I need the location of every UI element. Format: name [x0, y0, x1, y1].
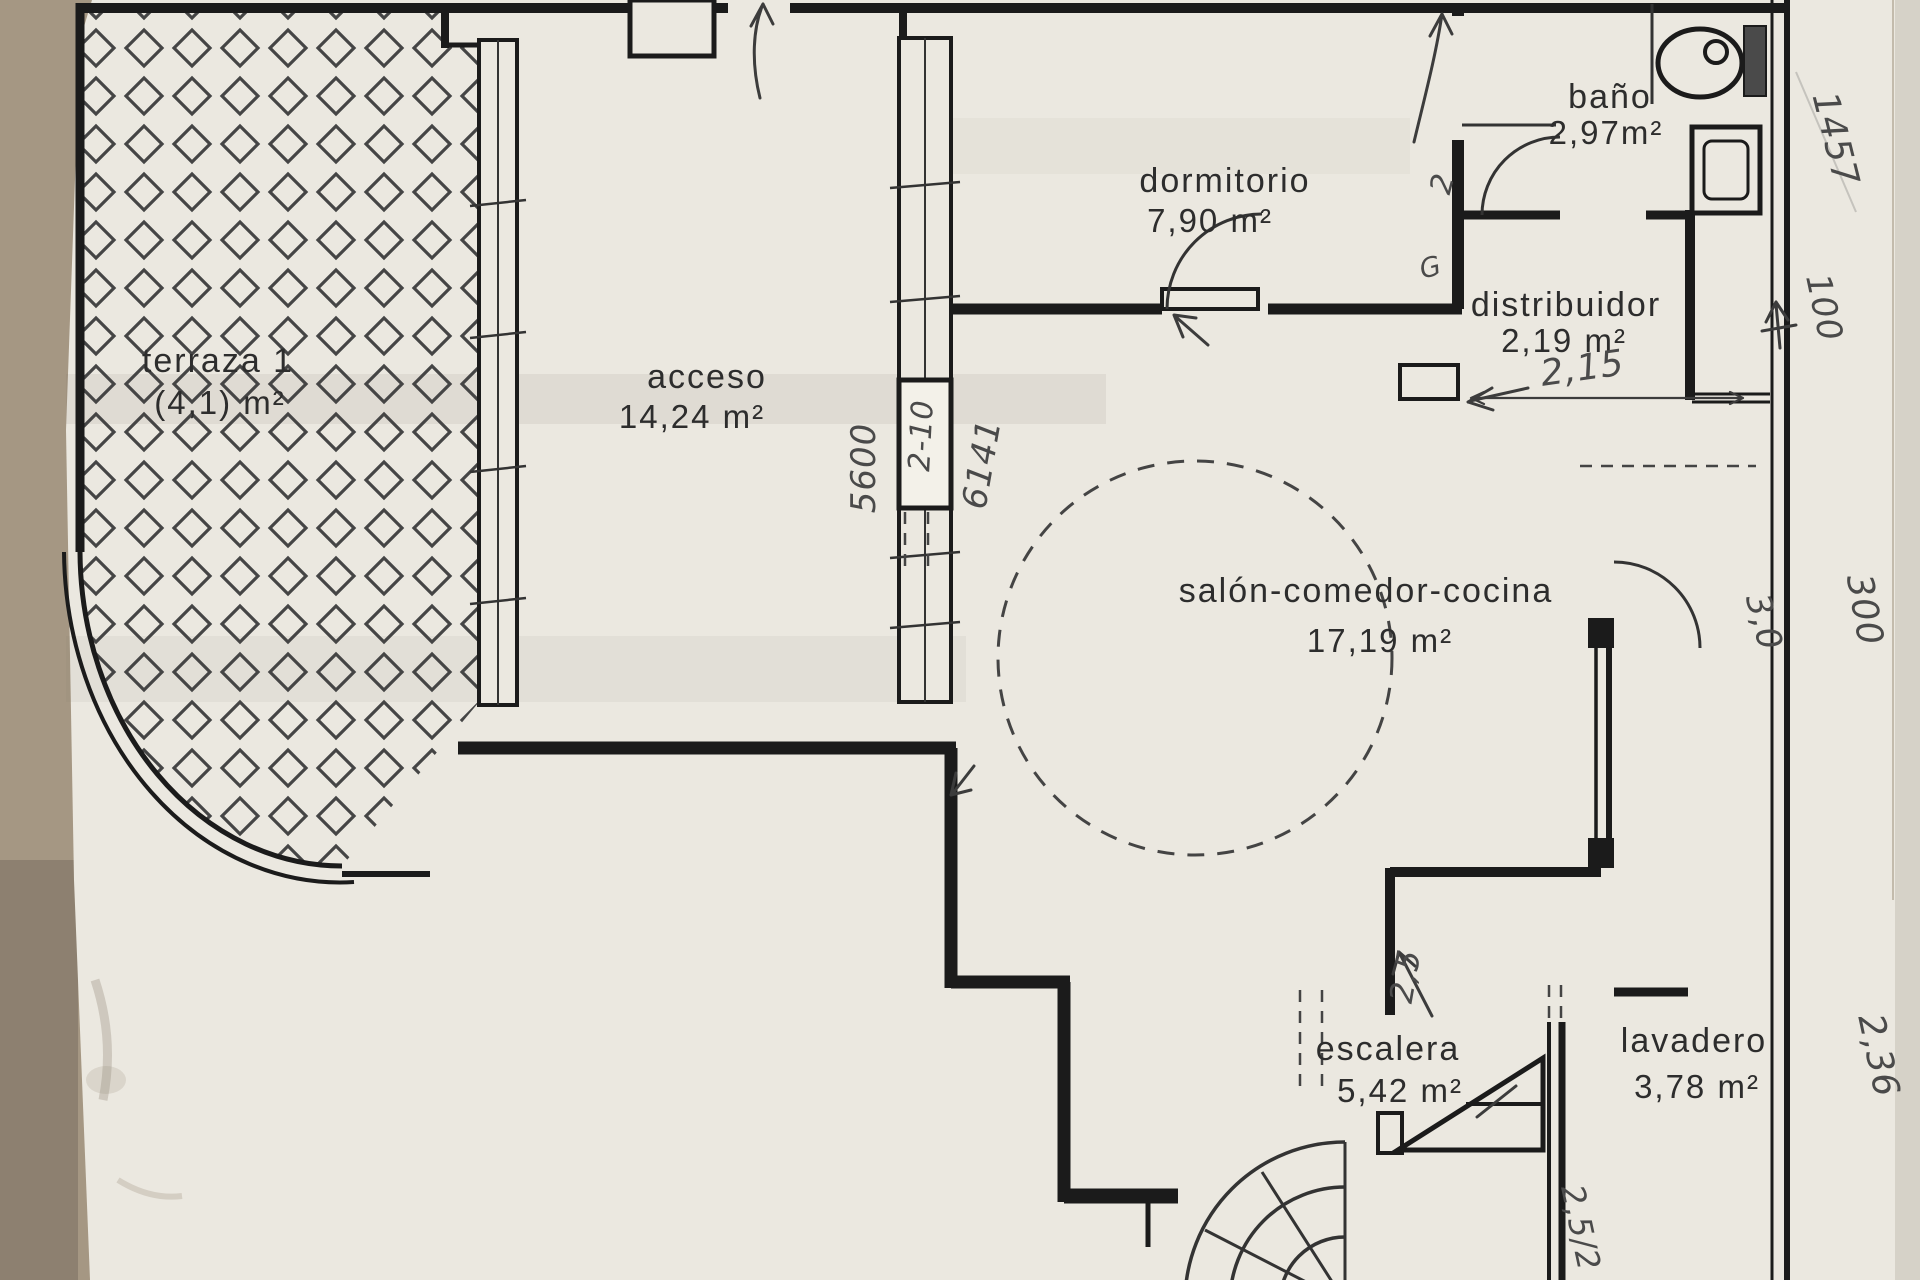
toilet-tank-icon — [1744, 26, 1766, 96]
floor-plan-svg: terraza 1 (4,1) m² acceso 14,24 m² dormi… — [0, 0, 1920, 1280]
dormitorio-door-leaf — [1162, 289, 1258, 309]
room-label-escalera: escalera — [1316, 1030, 1461, 1068]
room-label-terraza: terraza 1 — [142, 342, 294, 380]
room-label-distribuidor: distribuidor — [1471, 286, 1661, 324]
room-label-bano: baño — [1568, 78, 1652, 116]
toilet-icon — [1658, 29, 1742, 97]
room-area-escalera: 5,42 m² — [1337, 1072, 1463, 1109]
room-area-terraza: (4,1) m² — [154, 384, 286, 421]
handwritten-dim-5600: 5600 — [844, 423, 884, 514]
room-area-dormitorio: 7,90 m² — [1147, 202, 1273, 239]
terrace-hatch — [80, 10, 479, 866]
room-label-salon: salón-comedor-cocina — [1179, 572, 1554, 610]
top-niche — [630, 0, 714, 56]
room-area-salon: 17,19 m² — [1307, 622, 1453, 659]
room-label-acceso: acceso — [647, 358, 767, 396]
handwritten-dim-2-10: 2-10 — [902, 399, 941, 473]
room-label-lavadero: lavadero — [1621, 1022, 1767, 1060]
door-jamb-top — [1588, 618, 1614, 648]
door-jamb-bottom — [1588, 838, 1614, 868]
room-label-dormitorio: dormitorio — [1139, 162, 1310, 200]
distribuidor-door-sill — [1400, 365, 1458, 399]
room-area-bano: 2,97m² — [1549, 114, 1664, 151]
room-area-acceso: 14,24 m² — [619, 398, 765, 435]
floor-plan-scan: terraza 1 (4,1) m² acceso 14,24 m² dormi… — [0, 0, 1920, 1280]
scan-shadow-corner — [0, 860, 78, 1280]
room-area-lavadero: 3,78 m² — [1634, 1068, 1760, 1105]
